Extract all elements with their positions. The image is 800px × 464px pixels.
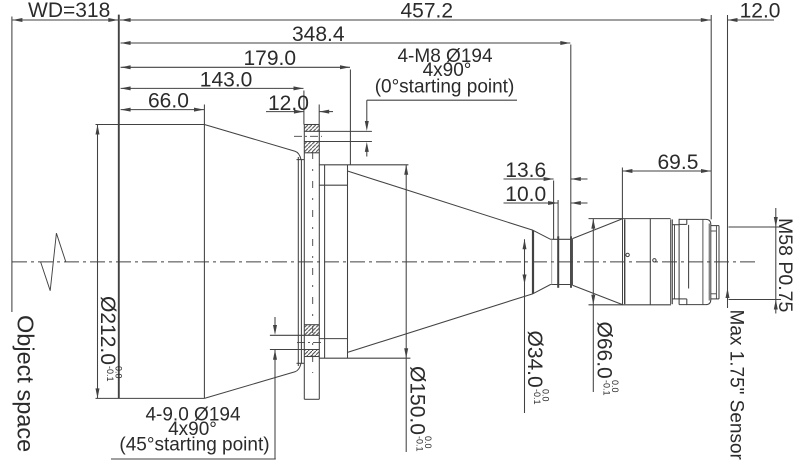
svg-text:69.5: 69.5	[658, 151, 699, 174]
svg-text:10.0: 10.0	[505, 183, 546, 206]
svg-text:Ø66.0: Ø66.0	[593, 322, 616, 379]
svg-text:66.0: 66.0	[148, 89, 189, 112]
svg-text:348.4: 348.4	[292, 23, 345, 46]
svg-text:Ø34.0: Ø34.0	[523, 331, 546, 388]
svg-text:12.0: 12.0	[740, 0, 781, 23]
svg-text:457.2: 457.2	[401, 0, 454, 23]
svg-text:M58 P0.75: M58 P0.75	[774, 218, 796, 312]
svg-text:Ø212.0: Ø212.0	[96, 296, 119, 365]
svg-text:-0.1: -0.1	[532, 389, 542, 405]
svg-text:WD=318: WD=318	[28, 0, 110, 22]
svg-text:(45°starting point): (45°starting point)	[119, 435, 269, 456]
svg-text:13.6: 13.6	[505, 159, 546, 182]
svg-text:Ø150.0: Ø150.0	[406, 366, 429, 435]
svg-text:-0.1: -0.1	[602, 380, 612, 396]
svg-text:Max 1.75" Sensor: Max 1.75" Sensor	[726, 310, 747, 461]
svg-text:12.0: 12.0	[268, 92, 309, 115]
svg-text:(0°starting point): (0°starting point)	[375, 76, 515, 97]
svg-text:143.0: 143.0	[200, 69, 253, 92]
svg-text:-0.1: -0.1	[105, 366, 115, 382]
svg-text:179.0: 179.0	[244, 47, 297, 70]
svg-text:-0.1: -0.1	[415, 436, 425, 452]
svg-text:Object space: Object space	[13, 315, 39, 452]
